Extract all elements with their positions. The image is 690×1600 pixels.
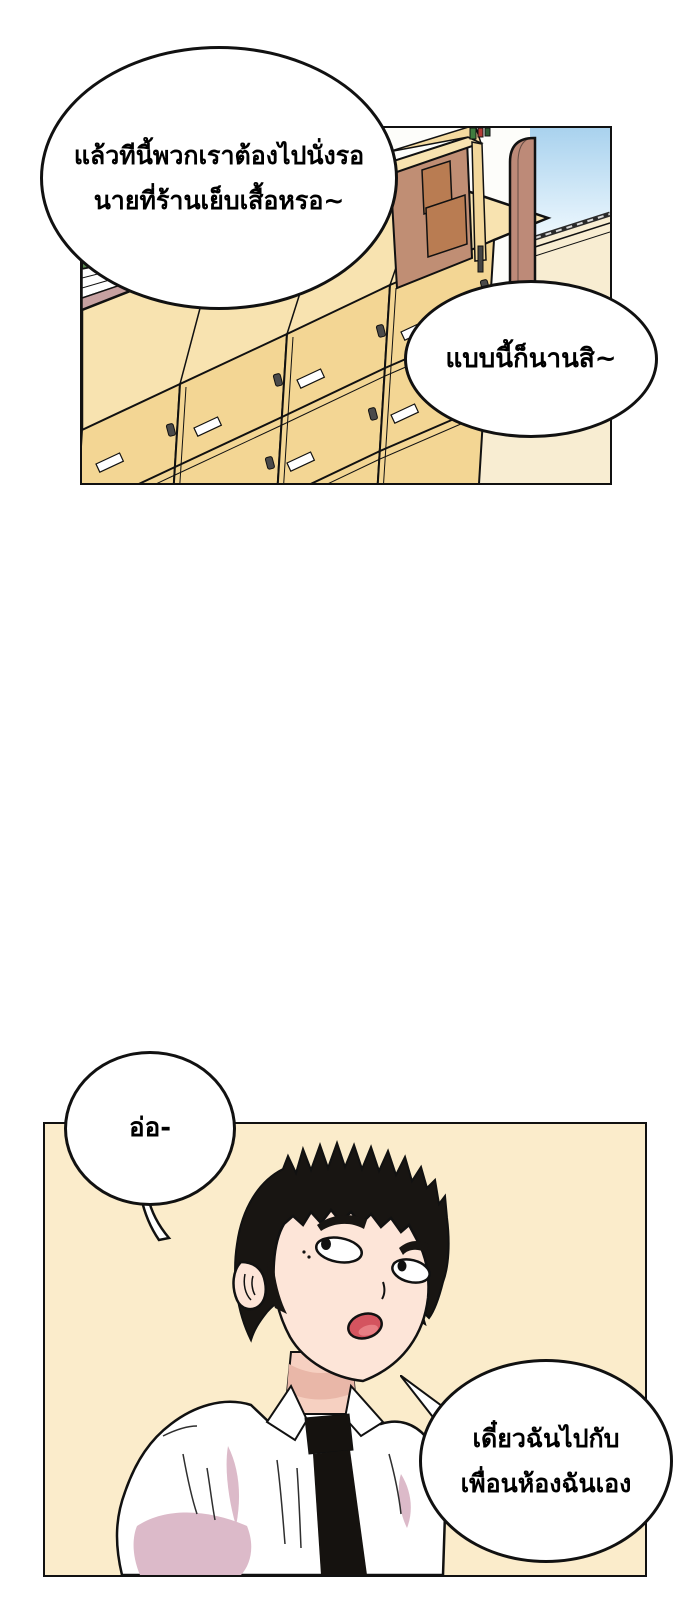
bubble-text-line: นายที่ร้านเย็บเสื้อหรอ~ <box>94 178 345 223</box>
bubble-text-line: แล้วทีนี้พวกเราต้องไปนั่งรอ <box>74 133 364 178</box>
comic-page: แล้วทีนี้พวกเราต้องไปนั่งรอ นายที่ร้านเย… <box>0 0 690 1600</box>
bubble-text-line: อ่อ- <box>129 1105 171 1152</box>
bubble-text-line: แบบนี้ก็นานสิ~ <box>445 336 616 383</box>
left-pupil <box>321 1238 331 1250</box>
cabinet-latch <box>478 246 483 272</box>
speech-bubble-1: แล้วทีนี้พวกเราต้องไปนั่งรอ นายที่ร้านเย… <box>40 46 398 310</box>
bubble-text-line: เดี๋ยวฉันไปกับ <box>472 1416 619 1461</box>
speech-bubble-3: อ่อ- <box>64 1051 236 1206</box>
right-pupil <box>398 1261 407 1272</box>
bubble-text-line: เพื่อนห้องฉันเอง <box>461 1461 632 1506</box>
speech-bubble-2: แบบนี้ก็นานสิ~ <box>404 280 658 438</box>
mole <box>307 1255 310 1258</box>
mole <box>302 1250 305 1253</box>
speech-bubble-4: เดี๋ยวฉันไปกับ เพื่อนห้องฉันเอง <box>419 1359 673 1563</box>
